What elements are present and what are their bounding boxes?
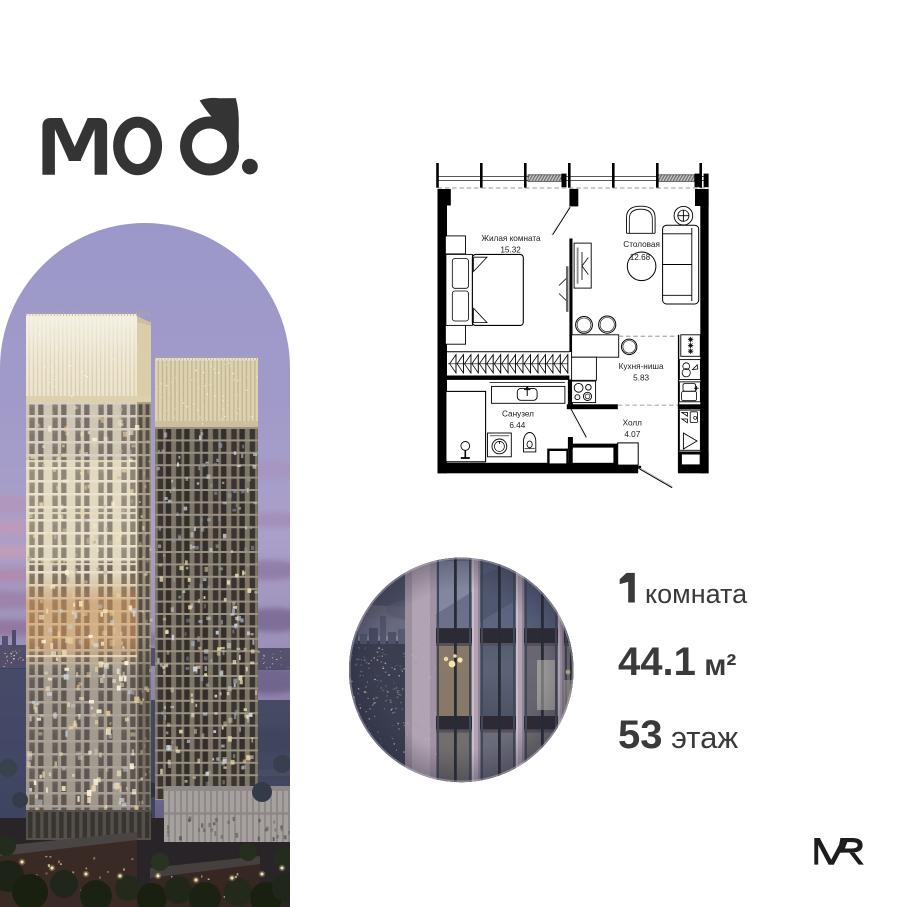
svg-text:Холл: Холл <box>623 418 643 427</box>
svg-text:12.68: 12.68 <box>630 253 651 262</box>
svg-text:Кухня-ниша: Кухня-ниша <box>619 362 664 371</box>
svg-text:4.07: 4.07 <box>624 430 640 439</box>
svg-text:6.44: 6.44 <box>509 421 525 430</box>
svg-text:Столовая: Столовая <box>623 240 660 249</box>
svg-text:Жилая комната: Жилая комната <box>481 234 541 243</box>
svg-text:15.32: 15.32 <box>500 246 521 255</box>
svg-text:Санузел: Санузел <box>502 409 534 418</box>
svg-text:5.83: 5.83 <box>633 374 649 383</box>
